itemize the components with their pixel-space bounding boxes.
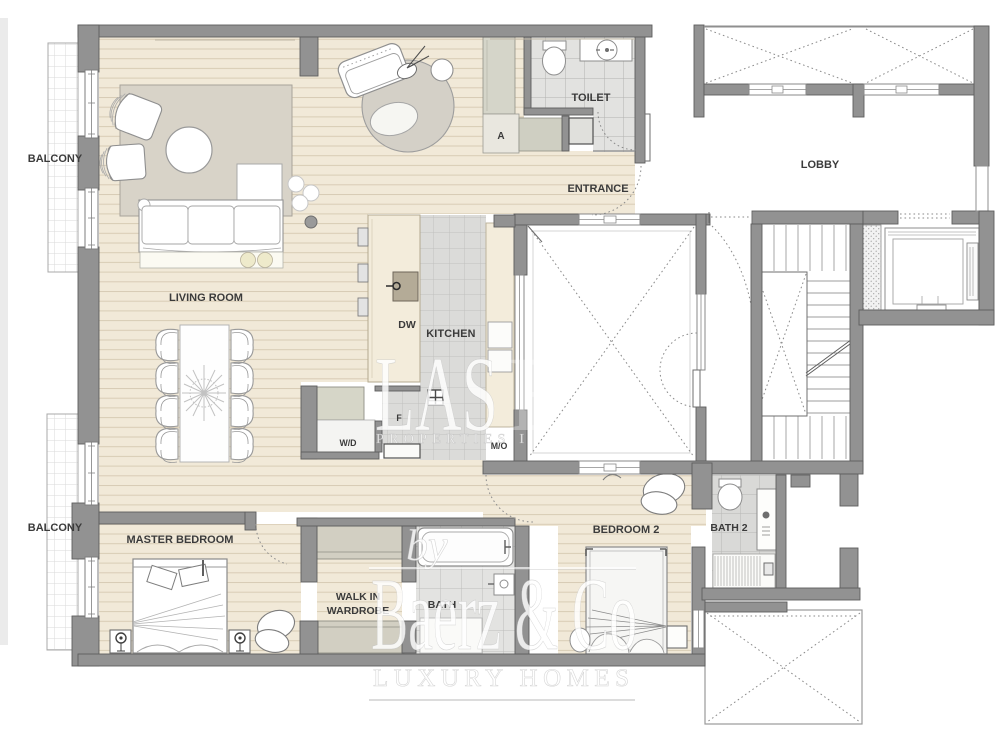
svg-text:E: E bbox=[507, 336, 572, 454]
svg-text:MASTER BEDROOM: MASTER BEDROOM bbox=[127, 534, 234, 546]
svg-text:BEDROOM 2: BEDROOM 2 bbox=[593, 524, 660, 536]
svg-text:LIVING ROOM: LIVING ROOM bbox=[169, 292, 243, 304]
svg-text:TOILET: TOILET bbox=[572, 92, 611, 104]
svg-text:PROPERTIES I: PROPERTIES I bbox=[376, 432, 524, 447]
svg-text:BALCONY: BALCONY bbox=[28, 522, 83, 534]
svg-text:BALCONY: BALCONY bbox=[28, 153, 83, 165]
svg-text:A: A bbox=[497, 131, 504, 142]
svg-text:LOBBY: LOBBY bbox=[801, 159, 840, 171]
svg-text:ENTRANCE: ENTRANCE bbox=[567, 183, 628, 195]
svg-text:Baerz & Co: Baerz & Co bbox=[371, 557, 637, 672]
svg-text:W/D: W/D bbox=[339, 438, 356, 448]
svg-text:DW: DW bbox=[398, 319, 416, 331]
svg-text:BATH 2: BATH 2 bbox=[710, 522, 747, 534]
